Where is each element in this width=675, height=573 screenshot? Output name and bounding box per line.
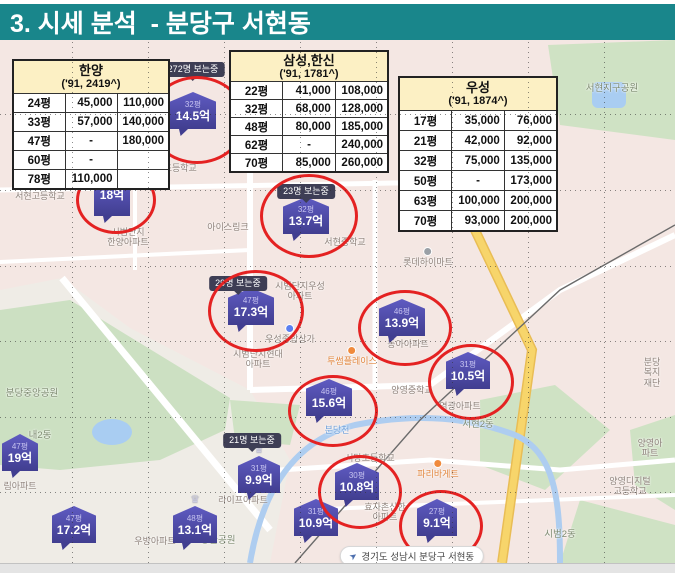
map-label: 분당중앙공원 bbox=[6, 389, 58, 400]
table-row: 70평93,000200,000 bbox=[399, 211, 557, 232]
map-label: 림아파트 bbox=[3, 481, 36, 491]
size-cell: 22평 bbox=[230, 82, 283, 100]
size-cell: 47평 bbox=[13, 132, 65, 151]
price-cell: 180,000 bbox=[117, 132, 169, 151]
size-cell: 70평 bbox=[399, 211, 452, 232]
price-cell: - bbox=[452, 171, 505, 191]
price-cell: 85,000 bbox=[283, 154, 336, 173]
marker-size-label: 48평 bbox=[173, 506, 217, 523]
size-cell: 33평 bbox=[13, 113, 65, 132]
viewers-tooltip: 272명 보는중 bbox=[162, 62, 225, 77]
marker-size-label: 31평 bbox=[238, 456, 280, 473]
table-row: 21평42,00092,000 bbox=[399, 131, 557, 151]
map-label: 시범단지현대 아파트 bbox=[233, 349, 283, 370]
map-label: 시범2동 bbox=[544, 530, 576, 541]
table-row: 47평-180,000 bbox=[13, 132, 169, 151]
price-cell: 45,000 bbox=[65, 94, 117, 113]
marker-price-label: 9.9억 bbox=[238, 473, 280, 487]
table-subtitle: ('91, 1874^) bbox=[402, 95, 554, 108]
map-label: 서현고등학교 bbox=[15, 191, 65, 201]
size-cell: 62평 bbox=[230, 136, 283, 154]
poi-dot-icon bbox=[348, 346, 357, 355]
price-cell: 110,000 bbox=[65, 170, 117, 190]
price-cell: 110,000 bbox=[117, 94, 169, 113]
price-cell: - bbox=[283, 136, 336, 154]
bottom-strip bbox=[0, 563, 675, 573]
marker-size-label: 47평 bbox=[2, 434, 38, 451]
size-cell: 21평 bbox=[399, 131, 452, 151]
size-cell: 70평 bbox=[230, 154, 283, 173]
price-table-samsung-hanshin: 삼성,한신 ('91, 1781^) 22평41,000108,00032평68… bbox=[229, 50, 389, 173]
price-cell: 240,000 bbox=[335, 136, 388, 154]
size-cell: 48평 bbox=[230, 118, 283, 136]
size-cell: 24평 bbox=[13, 94, 65, 113]
page-title: 3. 시세 분석 - 분당구 서현동 bbox=[0, 4, 311, 40]
map-label: 아이스링크 bbox=[207, 222, 248, 232]
price-marker[interactable]: ♛31평9.9억 bbox=[238, 456, 280, 500]
table-row: 60평- bbox=[13, 151, 169, 170]
highlight-circle bbox=[260, 174, 358, 258]
house-pin: 31평9.9억 bbox=[238, 456, 280, 493]
price-cell: 128,000 bbox=[335, 100, 388, 118]
price-cell: 200,000 bbox=[504, 191, 557, 211]
table-row: 33평57,000140,000 bbox=[13, 113, 169, 132]
table-title: 삼성,한신 bbox=[233, 53, 385, 68]
size-cell: 78평 bbox=[13, 170, 65, 190]
table-subtitle: ('91, 2419^) bbox=[16, 78, 166, 91]
highlight-circle bbox=[288, 375, 378, 447]
map-label: 양영디지털 고등학교 bbox=[609, 476, 650, 497]
size-cell: 32평 bbox=[230, 100, 283, 118]
title-bar: 3. 시세 분석 - 분당구 서현동 bbox=[0, 4, 675, 40]
table-row: 32평75,000135,000 bbox=[399, 151, 557, 171]
price-cell bbox=[117, 151, 169, 170]
size-cell: 17평 bbox=[399, 111, 452, 131]
pond bbox=[92, 419, 132, 445]
map-label: 서현지구공원 bbox=[586, 84, 638, 95]
poi-dot-icon bbox=[424, 247, 433, 256]
navigation-arrow-icon: ➤ bbox=[347, 549, 359, 562]
price-marker[interactable]: 47평17.2억 bbox=[52, 506, 96, 550]
map-label: 서현2동 bbox=[462, 420, 494, 431]
highlight-circle bbox=[428, 344, 514, 420]
table-row: 63평100,000200,000 bbox=[399, 191, 557, 211]
marker-price-label: 19억 bbox=[2, 451, 38, 465]
location-chip-label: 경기도 성남시 분당구 서현동 bbox=[361, 549, 474, 563]
house-pin: 47평19억 bbox=[2, 434, 38, 471]
price-cell: - bbox=[65, 132, 117, 151]
highlight-circle bbox=[318, 455, 402, 529]
price-cell bbox=[117, 170, 169, 190]
price-cell: 35,000 bbox=[452, 111, 505, 131]
highlight-circle bbox=[208, 270, 304, 352]
price-cell: 135,000 bbox=[504, 151, 557, 171]
table-row: 32평68,000128,000 bbox=[230, 100, 388, 118]
table-title: 우성 bbox=[402, 80, 554, 95]
map-label: 우방아파트 bbox=[134, 536, 175, 546]
price-cell: 92,000 bbox=[504, 131, 557, 151]
price-cell: 173,000 bbox=[504, 171, 557, 191]
size-cell: 32평 bbox=[399, 151, 452, 171]
table-row: 70평85,000260,000 bbox=[230, 154, 388, 173]
crown-icon: ♛ bbox=[190, 495, 200, 506]
table-subtitle: ('91, 1781^) bbox=[233, 68, 385, 81]
marker-tail bbox=[182, 543, 191, 550]
price-cell: 260,000 bbox=[335, 154, 388, 173]
table-row: 62평-240,000 bbox=[230, 136, 388, 154]
price-marker[interactable]: 47평19억 bbox=[2, 434, 38, 478]
marker-size-label: 47평 bbox=[52, 506, 96, 523]
map-label: 파리바게트 bbox=[417, 459, 458, 479]
size-cell: 50평 bbox=[399, 171, 452, 191]
price-cell: 57,000 bbox=[65, 113, 117, 132]
marker-tail bbox=[247, 493, 256, 500]
table-title: 한양 bbox=[16, 63, 166, 78]
table-row: 17평35,00076,000 bbox=[399, 111, 557, 131]
poi-dot-icon bbox=[434, 459, 443, 468]
marker-price-label: 17.2억 bbox=[52, 523, 96, 537]
price-table-hanyang: 한양 ('91, 2419^) 24평45,000110,00033평57,00… bbox=[12, 59, 170, 190]
price-cell: 185,000 bbox=[335, 118, 388, 136]
map-label: 양영아파트 bbox=[638, 438, 663, 459]
marker-tail bbox=[303, 536, 312, 543]
table-row: 24평45,000110,000 bbox=[13, 94, 169, 113]
price-cell: 200,000 bbox=[504, 211, 557, 232]
table-row: 50평-173,000 bbox=[399, 171, 557, 191]
table-row: 78평110,000 bbox=[13, 170, 169, 190]
size-cell: 60평 bbox=[13, 151, 65, 170]
price-cell: 100,000 bbox=[452, 191, 505, 211]
map-label: 분당 복지재단 bbox=[641, 357, 664, 388]
price-cell: 140,000 bbox=[117, 113, 169, 132]
house-pin: 48평13.1억 bbox=[173, 506, 217, 543]
map-label: 롯데하이마트 bbox=[403, 247, 453, 267]
price-table-wooseong: 우성 ('91, 1874^) 17평35,00076,00021평42,000… bbox=[398, 76, 558, 232]
table-row: 22평41,000108,000 bbox=[230, 82, 388, 100]
slide: 서현고등학교서현초등학교아이스링크시범단지 한양아파트서현중학교롯데하이마트시범… bbox=[0, 0, 675, 573]
table-row: 48평80,000185,000 bbox=[230, 118, 388, 136]
price-cell: 93,000 bbox=[452, 211, 505, 232]
marker-tail bbox=[61, 543, 70, 550]
price-cell: 75,000 bbox=[452, 151, 505, 171]
highlight-circle bbox=[358, 290, 452, 366]
viewers-tooltip: 21명 보는중 bbox=[223, 433, 281, 448]
house-pin: 47평17.2억 bbox=[52, 506, 96, 543]
marker-price-label: 13.1억 bbox=[173, 523, 217, 537]
map-label: 양영중학교 bbox=[391, 385, 432, 395]
price-cell: - bbox=[65, 151, 117, 170]
price-cell: 108,000 bbox=[335, 82, 388, 100]
price-cell: 80,000 bbox=[283, 118, 336, 136]
price-cell: 41,000 bbox=[283, 82, 336, 100]
price-marker[interactable]: ♛48평13.1억 bbox=[173, 506, 217, 550]
price-cell: 76,000 bbox=[504, 111, 557, 131]
marker-tail bbox=[11, 471, 20, 478]
size-cell: 63평 bbox=[399, 191, 452, 211]
price-cell: 42,000 bbox=[452, 131, 505, 151]
price-cell: 68,000 bbox=[283, 100, 336, 118]
